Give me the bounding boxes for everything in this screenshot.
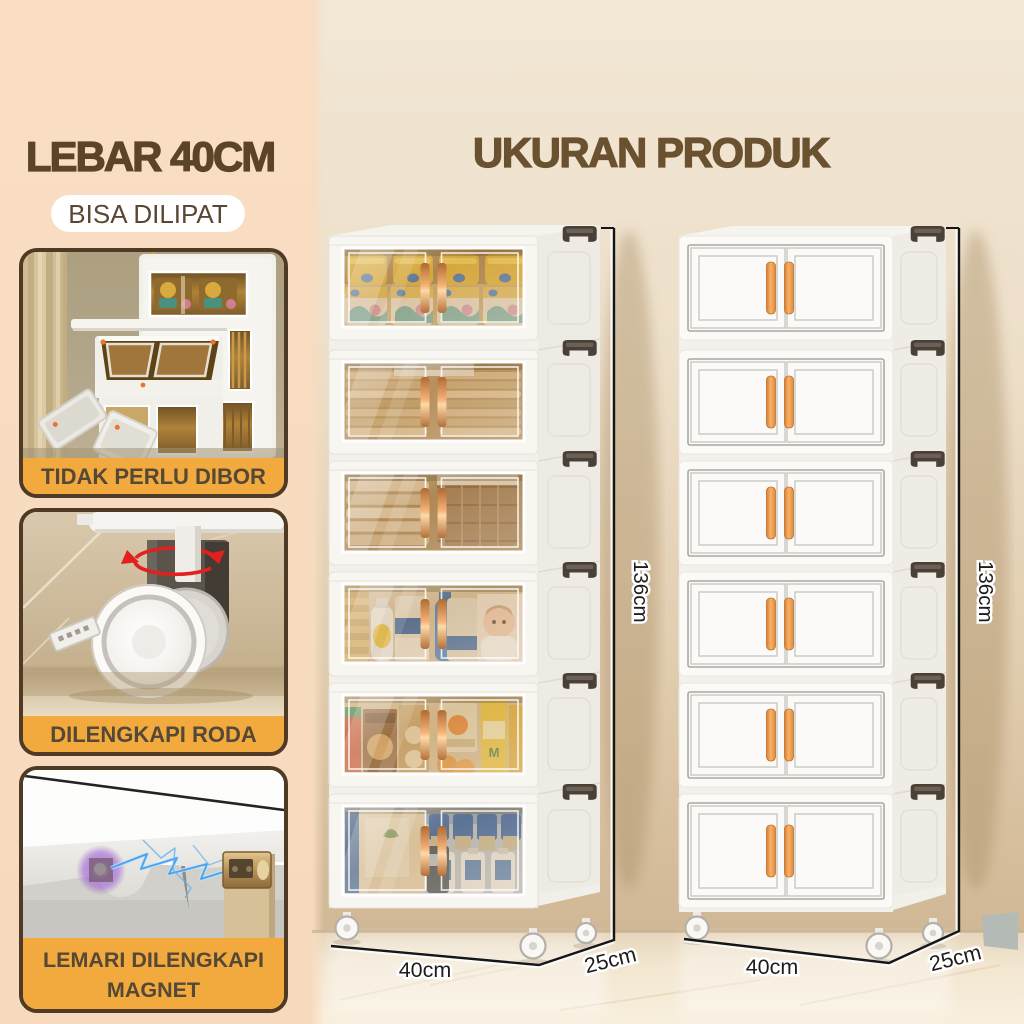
- svg-text:136cm: 136cm: [629, 561, 652, 623]
- svg-text:UKURAN PRODUK: UKURAN PRODUK: [473, 129, 830, 176]
- svg-text:136cm: 136cm: [974, 561, 997, 623]
- svg-text:40cm: 40cm: [746, 955, 799, 979]
- svg-text:40cm: 40cm: [399, 958, 452, 982]
